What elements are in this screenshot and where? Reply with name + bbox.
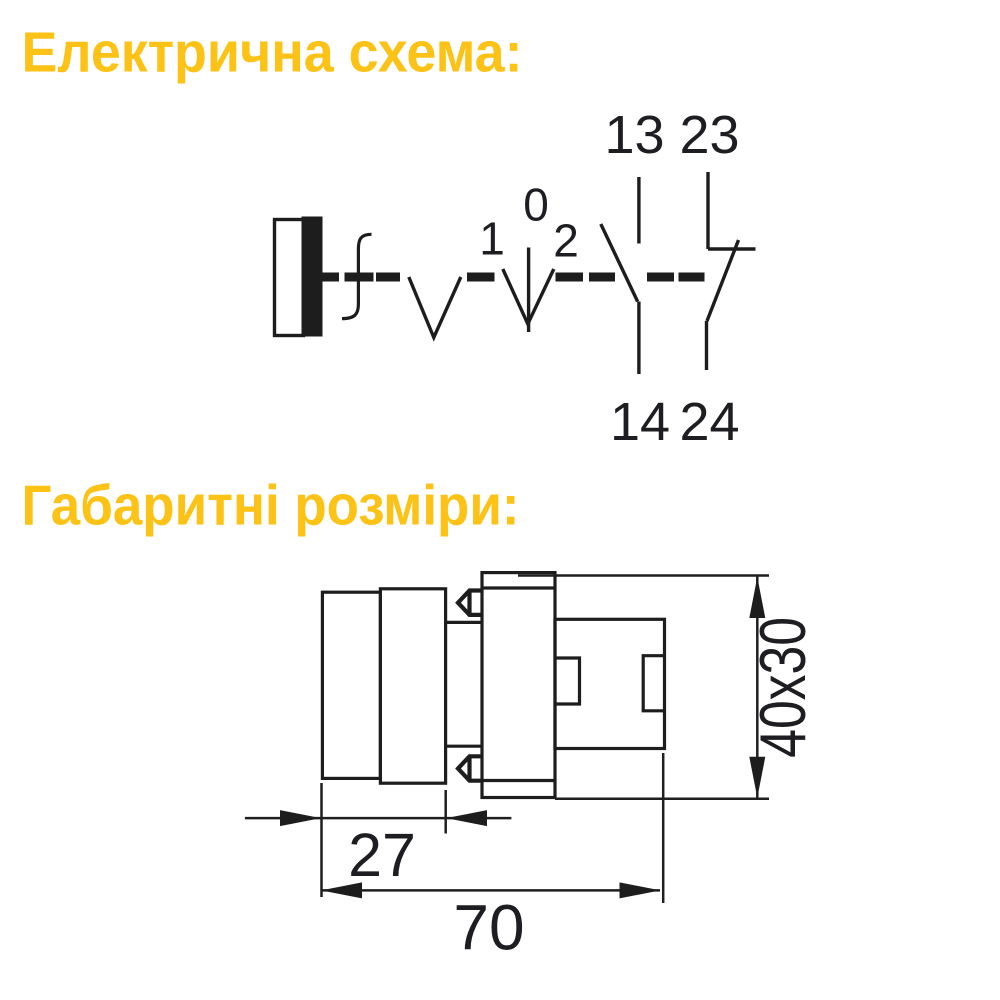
svg-text:24: 24 [679,392,739,452]
svg-text:13: 13 [604,105,664,165]
svg-text:1: 1 [479,213,505,265]
svg-text:23: 23 [679,105,739,165]
svg-text:0: 0 [523,179,549,231]
svg-text:Габаритні розміри:: Габаритні розміри: [22,474,520,538]
svg-text:2: 2 [553,215,579,267]
svg-text:40x30: 40x30 [747,617,819,758]
svg-text:14: 14 [610,392,670,452]
svg-text:70: 70 [453,892,524,964]
svg-text:Електрична схема:: Електрична схема: [22,20,523,84]
svg-text:27: 27 [348,821,416,889]
